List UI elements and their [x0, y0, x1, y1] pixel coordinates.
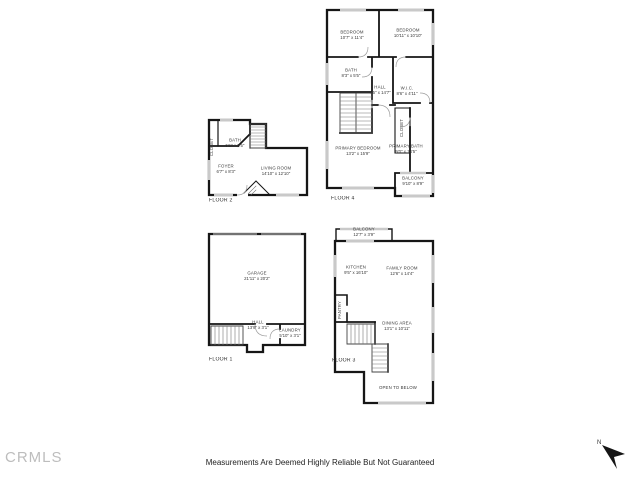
floor-2-windows — [209, 120, 299, 195]
room-name: OPEN TO BELOW — [379, 386, 417, 392]
floor-2-entry-door — [237, 185, 248, 195]
room-dims: 6'7" x 8'3" — [217, 170, 236, 176]
compass-label: N — [597, 440, 601, 446]
floor-1-stairs-icon — [211, 326, 243, 345]
room-label-living-room: LIVING ROOM 14'10" x 12'10" — [261, 166, 291, 177]
floor-2-walls — [209, 120, 307, 195]
floor-4-stairs-icon — [340, 93, 372, 133]
floor-2-plan — [200, 112, 312, 207]
room-dims: 13'9" x 3'1" — [247, 326, 268, 332]
room-label-open-to-below: OPEN TO BELOW — [379, 386, 417, 392]
room-dims: 10'11" x 10'10" — [394, 34, 422, 40]
room-label-bedroom-2: BEDROOM 10'11" x 10'10" — [394, 28, 422, 39]
room-label-hall-f1: HALL 13'9" x 3'1" — [247, 320, 268, 331]
room-label-balcony-f3: BALCONY 12'7" x 3'9" — [353, 227, 375, 238]
room-label-wic: W.I.C. 8'6" x 4'11" — [397, 86, 418, 97]
room-dims: 5'1" x 8'5" — [226, 144, 245, 150]
room-dims: 12'6" x 14'4" — [386, 272, 417, 278]
floor-4-tag: FLOOR 4 — [331, 196, 355, 201]
room-dims: 8'3" x 5'5" — [342, 74, 361, 80]
room-label-bath-f2: BATH 5'1" x 8'5" — [226, 138, 245, 149]
room-label-primary-bath: PRIMARY BATH 9'0" x 14'5" — [389, 144, 423, 155]
room-dims: 9'10" x 8'9" — [402, 182, 424, 188]
floor-2-stairs-icon — [250, 124, 266, 148]
room-label-dining-area: DINING AREA 13'1" x 10'11" — [382, 321, 411, 332]
room-label-hall-f4: HALL 4'5" x 14'7" — [369, 85, 390, 96]
room-dims: 10'7" x 11'4" — [340, 36, 363, 42]
floor-2-tag: FLOOR 2 — [209, 198, 233, 203]
room-label-foyer: FOYER 6'7" x 8'3" — [217, 164, 236, 175]
room-label-family-room: FAMILY ROOM 12'6" x 14'4" — [386, 266, 417, 277]
floorplan-sheet: GARAGE 21'11" x 20'2" HALL 13'9" x 3'1" … — [0, 0, 640, 480]
floor-3-tag: FLOOR 3 — [332, 358, 356, 363]
room-label-balcony-f4: BALCONY 9'10" x 8'9" — [402, 176, 424, 187]
room-label-bath-f4: BATH 8'3" x 5'5" — [342, 68, 361, 79]
room-dims: 13'1" x 10'11" — [382, 327, 411, 333]
compass-north-icon: N — [596, 436, 630, 472]
floor-1-tag: FLOOR 1 — [209, 357, 233, 362]
room-label-bedroom-1: BEDROOM 10'7" x 11'4" — [340, 30, 363, 41]
floor-3-walls — [335, 229, 433, 403]
room-label-laundry: LAUNDRY 5'10" x 3'1" — [279, 328, 301, 339]
room-label-closet-f2: CLOSET — [210, 138, 216, 156]
room-label-closet-f4: CLOSET — [400, 119, 406, 137]
room-dims: 12'7" x 3'9" — [353, 233, 375, 239]
floor-3-plan — [330, 225, 440, 410]
room-dims: 9'0" x 14'5" — [389, 150, 423, 156]
room-dims: 21'11" x 20'2" — [244, 277, 270, 283]
room-name: CLOSET — [400, 119, 406, 137]
disclaimer-text: Measurements Are Deemed Highly Reliable … — [0, 458, 640, 467]
room-label-kitchen: KITCHEN 9'5" x 16'10" — [344, 265, 368, 276]
room-dims: 9'5" x 16'10" — [344, 271, 368, 277]
room-dims: 8'6" x 4'11" — [397, 92, 418, 98]
floor-3-windows — [335, 229, 433, 403]
room-dims: 14'10" x 12'10" — [261, 172, 291, 178]
room-label-garage: GARAGE 21'11" x 20'2" — [244, 271, 270, 282]
floor-1-plan — [195, 228, 315, 368]
room-dims: 4'5" x 14'7" — [369, 91, 390, 97]
room-label-primary-bedroom: PRIMARY BEDROOM 13'2" x 15'9" — [335, 146, 380, 157]
room-dims: 13'2" x 15'9" — [335, 152, 380, 158]
room-label-pantry: PANTRY — [338, 301, 344, 319]
room-name: PANTRY — [338, 301, 344, 319]
room-name: CLOSET — [210, 138, 216, 156]
room-dims: 5'10" x 3'1" — [279, 334, 301, 340]
compass-arrow — [602, 445, 625, 469]
